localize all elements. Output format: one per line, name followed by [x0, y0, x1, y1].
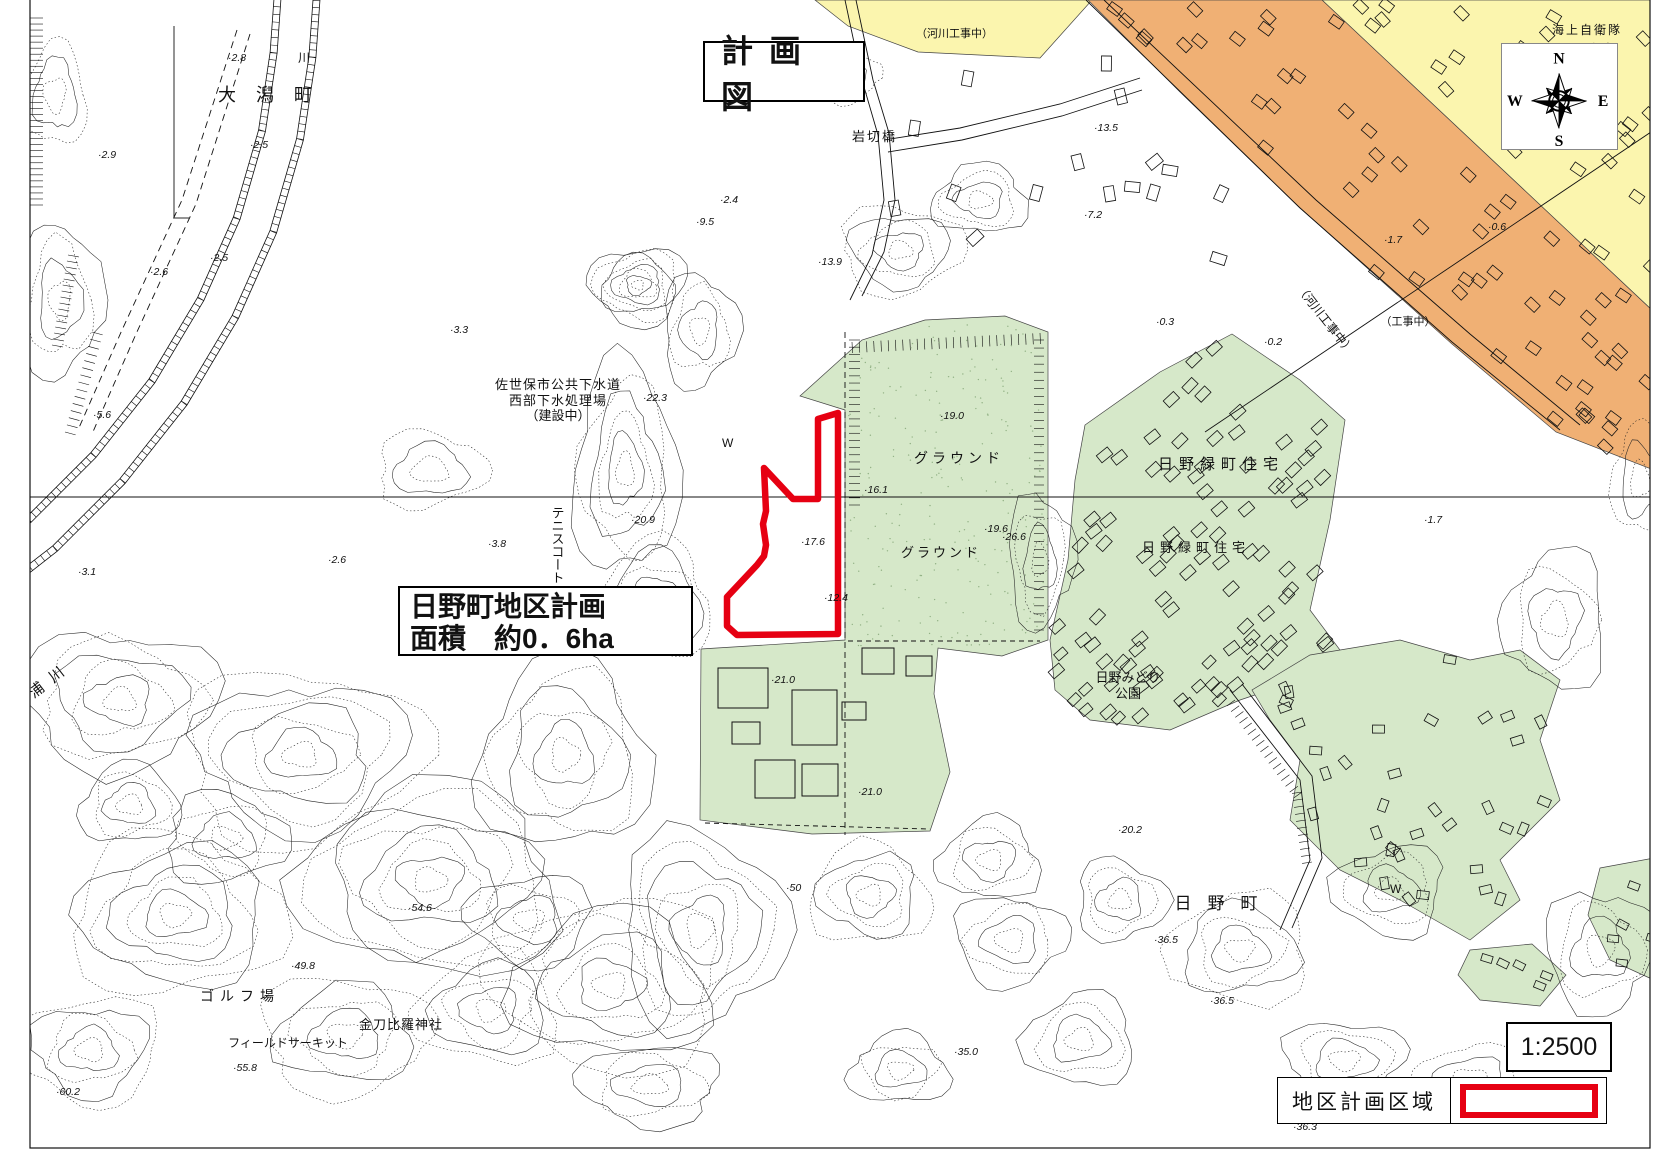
- compass-rose-icon: N S W E: [1502, 44, 1617, 149]
- spot-elevation: ·16.1: [864, 484, 888, 496]
- legend-swatch-cell: [1451, 1078, 1606, 1123]
- spot-elevation: ·21.0: [858, 786, 882, 798]
- map-label: グラウンド: [914, 450, 1004, 466]
- spot-elevation: ·2.5: [250, 139, 268, 151]
- compass-south-label: S: [1555, 133, 1564, 149]
- map-label: テニスコート: [550, 506, 565, 584]
- spot-elevation: ·2.9: [98, 149, 116, 161]
- spot-elevation: ·7.2: [1084, 209, 1102, 221]
- spot-elevation: ·0.3: [1156, 316, 1174, 328]
- map-label: （建設中）: [525, 408, 590, 423]
- spot-elevation: ·3.3: [450, 324, 468, 336]
- compass-west-label: W: [1507, 93, 1523, 110]
- map-label: 佐世保市公共下水道: [495, 377, 621, 392]
- plan-map-page: ·2.8·2.5·2.9·2.5·2.6·5.6·3.1·2.6·3.3·3.8…: [0, 0, 1654, 1169]
- map-label: 大潟町: [218, 85, 332, 105]
- map-label: W: [1390, 882, 1402, 896]
- spot-elevation: ·2.5: [210, 252, 228, 264]
- spot-elevation: ·2.8: [228, 52, 246, 64]
- spot-elevation: ·12.4: [824, 592, 848, 604]
- spot-elevation: ·35.0: [954, 1046, 978, 1058]
- spot-elevation: ·19.0: [940, 410, 964, 422]
- map-label: 公園: [1115, 686, 1141, 701]
- spot-elevation: ·5.6: [93, 409, 111, 421]
- spot-elevation: ·0.6: [1488, 221, 1506, 233]
- map-label: 日野みどり: [1095, 670, 1160, 685]
- spot-elevation: ·54.6: [408, 902, 432, 914]
- spot-elevation: ·2.4: [720, 194, 738, 206]
- spot-elevation: ·26.6: [1002, 531, 1026, 543]
- spot-elevation: ·20.9: [631, 514, 655, 526]
- spot-elevation: ·13.9: [818, 256, 842, 268]
- map-label: 日野緑町住宅: [1158, 456, 1284, 473]
- spot-elevation: ·55.8: [233, 1062, 257, 1074]
- compass-north-label: N: [1553, 51, 1565, 68]
- scale-value: 1:2500: [1521, 1033, 1597, 1062]
- map-artwork: ·2.8·2.5·2.9·2.5·2.6·5.6·3.1·2.6·3.3·3.8…: [0, 0, 1654, 1133]
- map-label: 川: [298, 51, 310, 65]
- spot-elevation: ·2.6: [150, 266, 168, 278]
- base-topographic-map: ·2.8·2.5·2.9·2.5·2.6·5.6·3.1·2.6·3.3·3.8…: [0, 0, 1654, 1169]
- map-label: （河川工事中）: [916, 27, 993, 40]
- spot-elevation: ·21.0: [771, 674, 795, 686]
- map-label: 相浦川: [6, 658, 76, 718]
- page-title: 計画図: [721, 26, 863, 118]
- spot-elevation: ·60.2: [56, 1086, 80, 1098]
- map-label: 海上自衛隊: [1552, 22, 1622, 37]
- spot-elevation: ·2.6: [328, 554, 346, 566]
- map-label: フィールドサーキット: [228, 1036, 348, 1050]
- district-callout-box: 日野町地区計画 面積 約0．6ha: [398, 586, 693, 656]
- title-box: 計画図: [703, 41, 865, 102]
- map-label: W: [722, 436, 734, 450]
- spot-elevation: ·36.5: [1154, 934, 1178, 946]
- spot-elevation: ·9.5: [696, 216, 714, 228]
- map-label: 日野町: [1175, 894, 1274, 913]
- spot-elevation: ·1.7: [1424, 514, 1443, 526]
- district-area: 面積 約0．6ha: [410, 623, 691, 655]
- district-plan-boundary: [727, 413, 838, 635]
- spot-elevation: ·22.3: [643, 392, 667, 404]
- spot-elevation: ·0.2: [1264, 336, 1282, 348]
- map-label: （河川工事中）: [1294, 282, 1358, 357]
- scale-box: 1:2500: [1506, 1022, 1612, 1072]
- compass-box: N S W E: [1501, 43, 1618, 150]
- spot-elevation: ·13.5: [1094, 122, 1118, 134]
- district-name: 日野町地区計画: [410, 591, 691, 623]
- spot-elevation: ·36.5: [1210, 995, 1234, 1007]
- spot-elevation: ·3.8: [488, 538, 506, 550]
- spot-elevation: ·20.2: [1118, 824, 1142, 836]
- spot-elevation: ·3.1: [78, 566, 96, 578]
- map-label: （工事中）: [1381, 315, 1436, 328]
- spot-elevation: ·1.7: [1384, 234, 1403, 246]
- spot-elevation: ·50: [786, 882, 801, 894]
- legend-label: 地区計画区域: [1278, 1078, 1451, 1123]
- compass-east-label: E: [1598, 93, 1608, 110]
- map-label: 西部下水処理場: [509, 393, 607, 408]
- legend-box: 地区計画区域: [1277, 1077, 1607, 1124]
- map-label: 金刀比羅神社: [359, 1017, 443, 1032]
- map-label: 岩切橋: [852, 129, 897, 144]
- map-label: 日野緑町住宅: [1142, 540, 1250, 555]
- map-label: グラウンド: [901, 545, 981, 560]
- map-label: ゴルフ場: [200, 988, 280, 1004]
- spot-elevation: ·49.8: [291, 960, 315, 972]
- district-boundary-swatch: [1460, 1084, 1598, 1118]
- spot-elevation: ·17.6: [801, 536, 825, 548]
